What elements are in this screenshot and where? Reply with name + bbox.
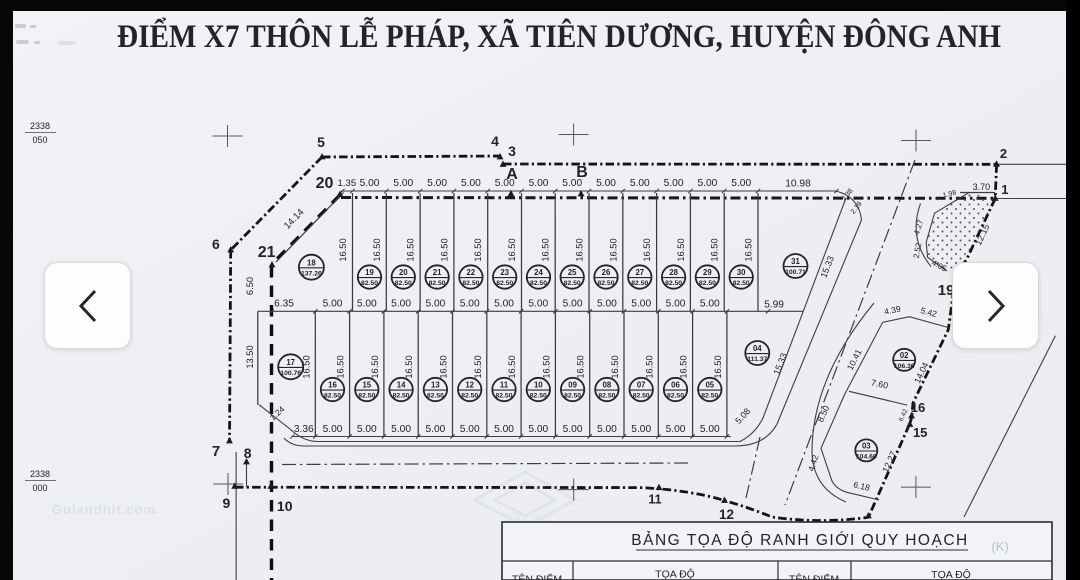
svg-text:ĐIỂM X7 THÔN LỄ PHÁP, XÃ TIÊN: ĐIỂM X7 THÔN LỄ PHÁP, XÃ TIÊN DƯƠNG, HUY… (117, 16, 1001, 55)
